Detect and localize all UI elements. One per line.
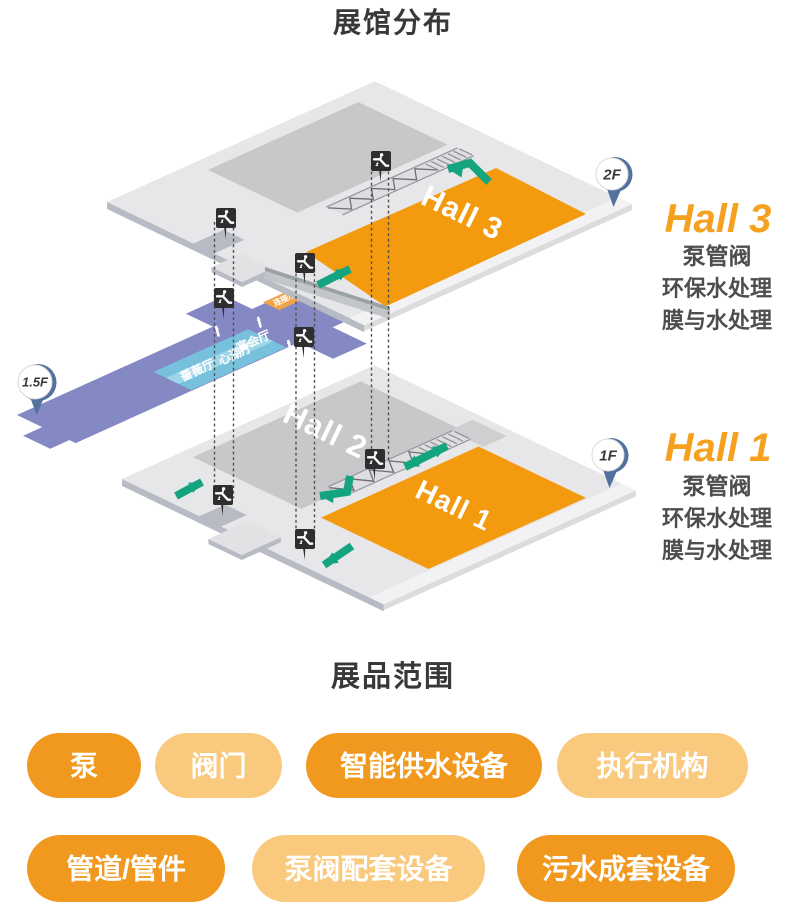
svg-text:展品范围: 展品范围	[331, 660, 455, 693]
svg-text:2F: 2F	[602, 166, 621, 183]
svg-text:环保水处理: 环保水处理	[662, 506, 772, 531]
svg-text:执行机构: 执行机构	[596, 750, 708, 782]
svg-text:泵阀配套设备: 泵阀配套设备	[284, 854, 453, 885]
svg-text:阀门: 阀门	[190, 751, 246, 782]
svg-text:展馆分布: 展馆分布	[333, 6, 453, 38]
svg-text:Hall 3: Hall 3	[665, 197, 772, 241]
svg-text:膜与水处理: 膜与水处理	[662, 308, 772, 333]
svg-text:膜与水处理: 膜与水处理	[662, 538, 772, 563]
svg-text:泵管阀: 泵管阀	[683, 243, 752, 269]
svg-text:泵管阀: 泵管阀	[683, 473, 752, 499]
svg-text:管道/管件: 管道/管件	[66, 853, 186, 885]
svg-text:环保水处理: 环保水处理	[662, 276, 772, 301]
svg-text:智能供水设备: 智能供水设备	[340, 751, 509, 782]
svg-text:污水成套设备: 污水成套设备	[542, 854, 711, 885]
svg-text:Hall 1: Hall 1	[665, 426, 772, 470]
svg-text:1.5F: 1.5F	[22, 375, 49, 390]
svg-text:泵: 泵	[70, 751, 98, 782]
svg-text:1F: 1F	[599, 447, 617, 464]
